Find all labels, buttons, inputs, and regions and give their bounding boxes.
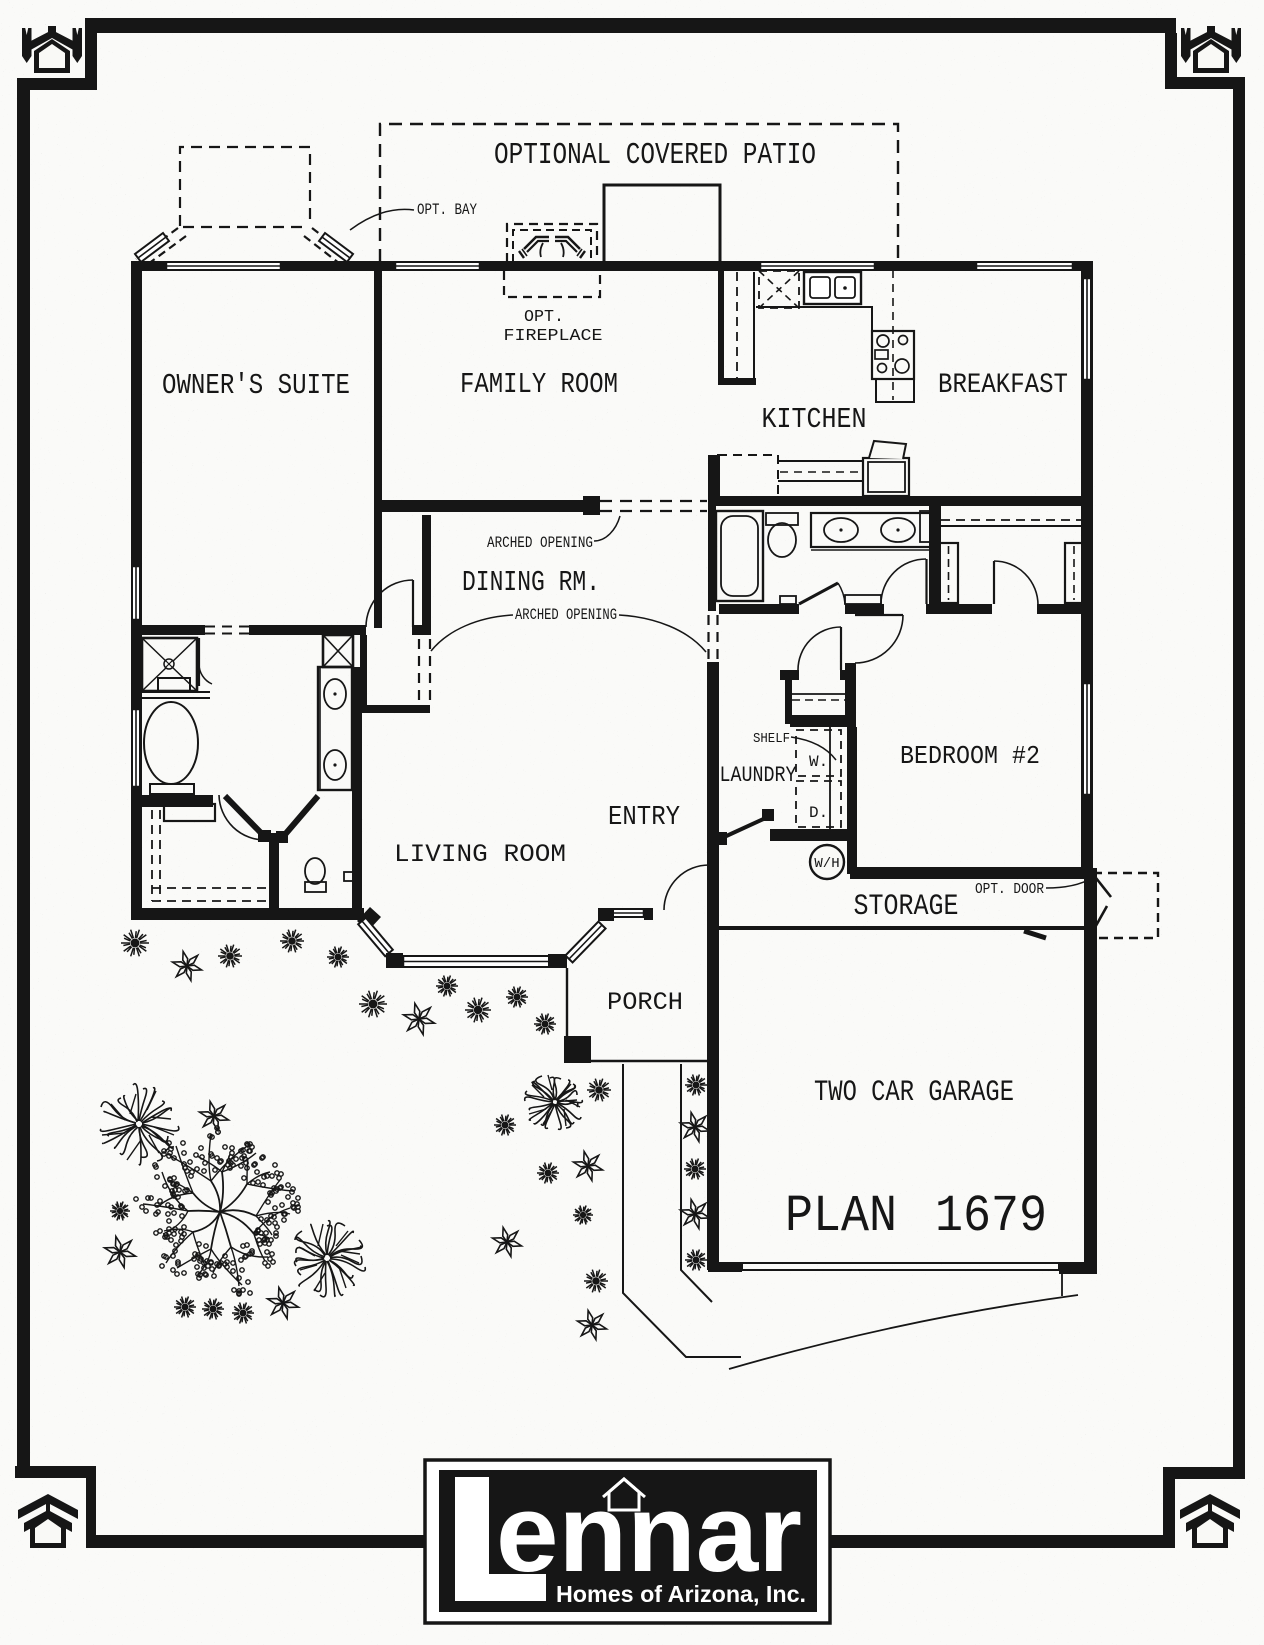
svg-text:W/H: W/H: [814, 856, 839, 872]
svg-text:BEDROOM #2: BEDROOM #2: [900, 741, 1040, 771]
svg-text:FIREPLACE: FIREPLACE: [504, 327, 603, 346]
svg-text:LAUNDRY: LAUNDRY: [720, 763, 797, 788]
svg-text:OPT.: OPT.: [524, 308, 564, 327]
svg-text:FAMILY ROOM: FAMILY ROOM: [460, 368, 618, 401]
svg-text:ennar: ennar: [496, 1472, 802, 1595]
svg-text:PLAN: PLAN: [785, 1187, 897, 1246]
svg-text:OPT. DOOR: OPT. DOOR: [975, 881, 1044, 898]
svg-text:TWO CAR GARAGE: TWO CAR GARAGE: [814, 1076, 1014, 1110]
svg-text:BREAKFAST: BREAKFAST: [938, 370, 1068, 401]
svg-text:1679: 1679: [935, 1187, 1047, 1246]
svg-text:PORCH: PORCH: [607, 988, 683, 1017]
svg-text:DINING RM.: DINING RM.: [462, 566, 600, 599]
svg-text:ARCHED OPENING: ARCHED OPENING: [515, 606, 617, 624]
svg-text:OPTIONAL COVERED PATIO: OPTIONAL COVERED PATIO: [494, 138, 816, 173]
svg-text:SHELF: SHELF: [753, 731, 790, 747]
svg-text:OPT. BAY: OPT. BAY: [417, 201, 477, 219]
svg-text:D.: D.: [809, 804, 828, 822]
svg-text:W.: W.: [809, 753, 828, 771]
svg-text:ENTRY: ENTRY: [608, 803, 680, 833]
svg-text:Homes of Arizona, Inc.: Homes of Arizona, Inc.: [556, 1581, 806, 1607]
svg-text:ARCHED OPENING: ARCHED OPENING: [487, 534, 593, 552]
svg-text:OWNER'S SUITE: OWNER'S SUITE: [162, 369, 350, 402]
svg-text:LIVING ROOM: LIVING ROOM: [394, 840, 566, 869]
svg-text:KITCHEN: KITCHEN: [762, 403, 867, 436]
svg-text:STORAGE: STORAGE: [854, 890, 959, 924]
